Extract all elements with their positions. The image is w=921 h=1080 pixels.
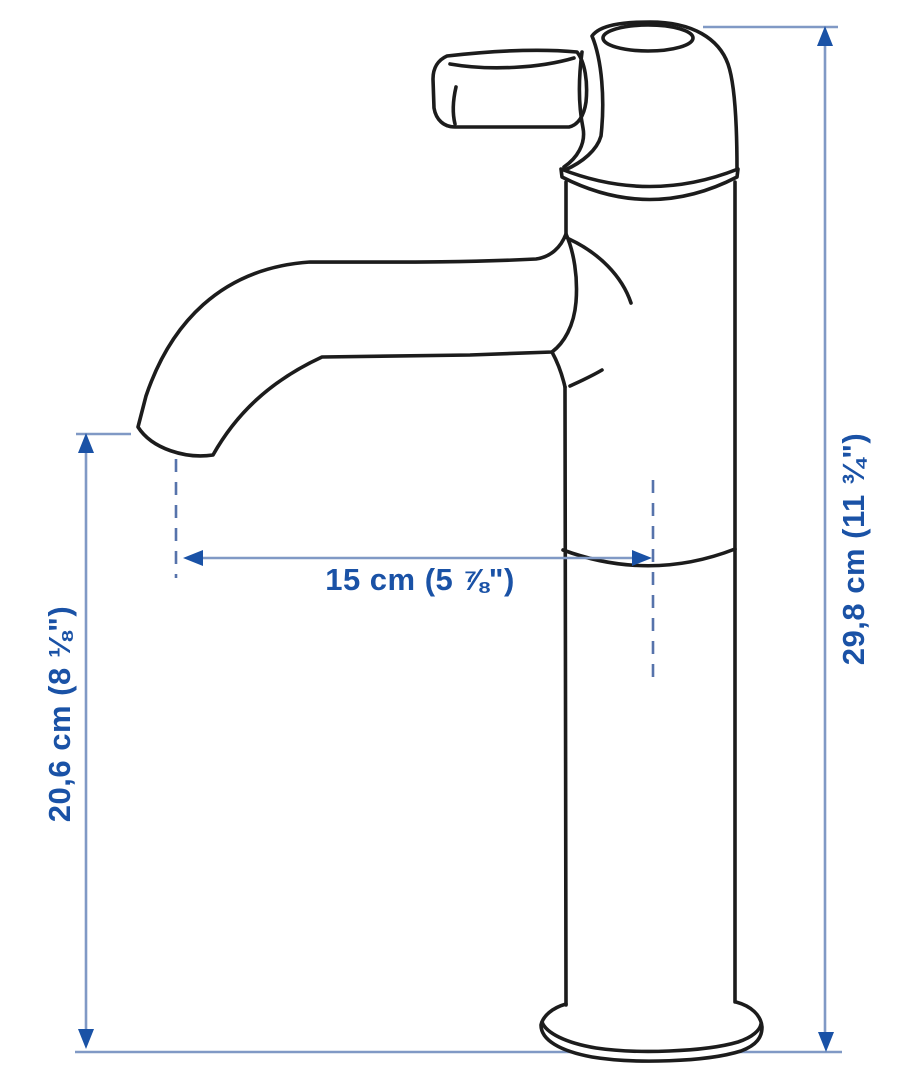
dimension-label-total-height: 29,8 cm (11 ¾") (836, 399, 872, 699)
faucet-diagram-canvas (0, 0, 921, 1080)
column-left-edge-lower (565, 387, 566, 1005)
arrow-up-icon (817, 26, 833, 46)
faucet-drawing (138, 22, 762, 1061)
product-dimension-diagram: 15 cm (5 ⅞") 29,8 cm (11 ¾") 20,6 cm (8 … (0, 0, 921, 1080)
dimension-label-spout-height: 20,6 cm (8 ⅛") (42, 564, 78, 864)
spout (138, 234, 577, 456)
cartridge-cap-ellipse (603, 25, 693, 51)
arrow-up-icon (78, 433, 94, 453)
arrow-left-icon (183, 550, 203, 566)
arrow-down-icon (818, 1032, 834, 1052)
dimension-label-spout-reach: 15 cm (5 ⅞") (225, 562, 615, 598)
spout-base-connector (552, 352, 565, 387)
arrow-down-icon (78, 1029, 94, 1049)
